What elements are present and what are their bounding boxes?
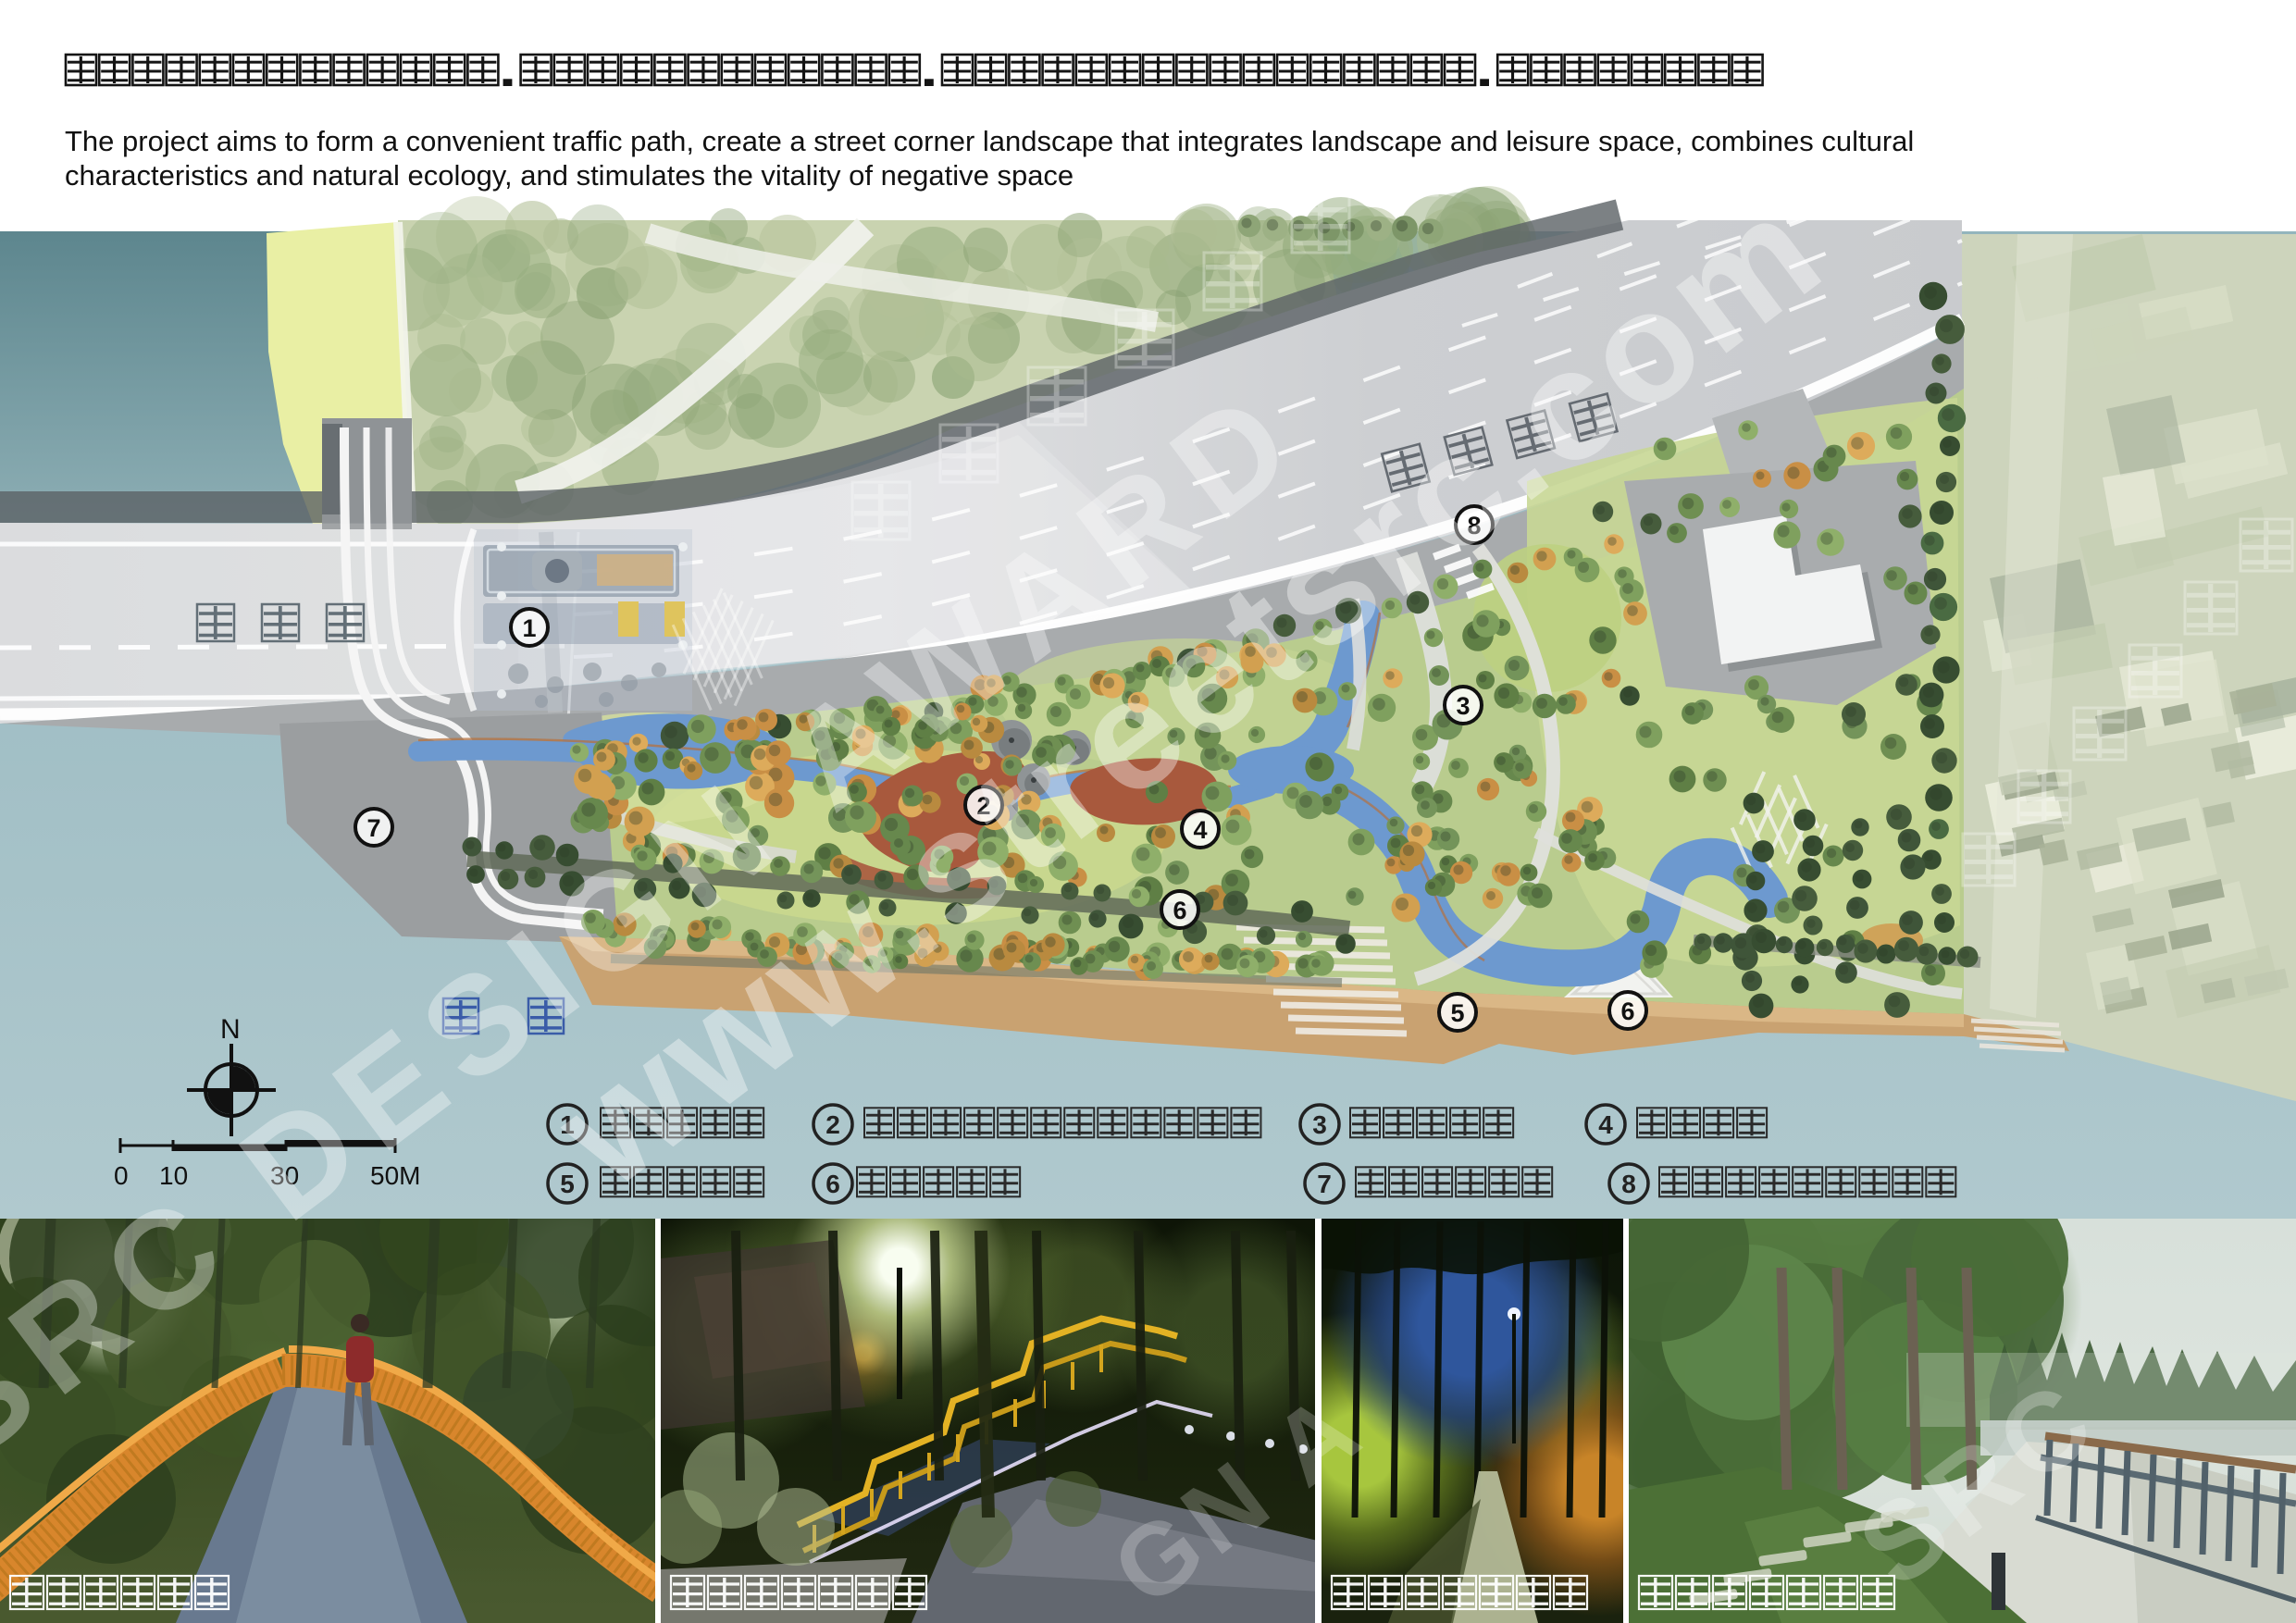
svg-text:N: N [220, 1014, 241, 1045]
svg-text:3: 3 [1312, 1110, 1327, 1139]
svg-text:5: 5 [1450, 999, 1464, 1027]
svg-text:8: 8 [1621, 1170, 1636, 1198]
svg-text:4: 4 [1598, 1110, 1613, 1139]
svg-text:6: 6 [1620, 997, 1634, 1025]
svg-text:7: 7 [366, 814, 380, 842]
svg-text:2: 2 [825, 1110, 840, 1139]
svg-text:0: 0 [114, 1161, 129, 1190]
svg-text:5: 5 [560, 1170, 575, 1198]
svg-text:7: 7 [1317, 1170, 1332, 1198]
svg-text:3: 3 [1456, 692, 1470, 720]
svg-text:1: 1 [522, 614, 536, 642]
svg-text:characteristics and natural ec: characteristics and natural ecology, and… [65, 159, 1074, 192]
svg-text:The project aims to form a con: The project aims to form a convenient tr… [65, 125, 1914, 157]
svg-text:6: 6 [1173, 897, 1186, 924]
svg-text:4: 4 [1193, 816, 1207, 844]
svg-text:6: 6 [825, 1170, 840, 1198]
